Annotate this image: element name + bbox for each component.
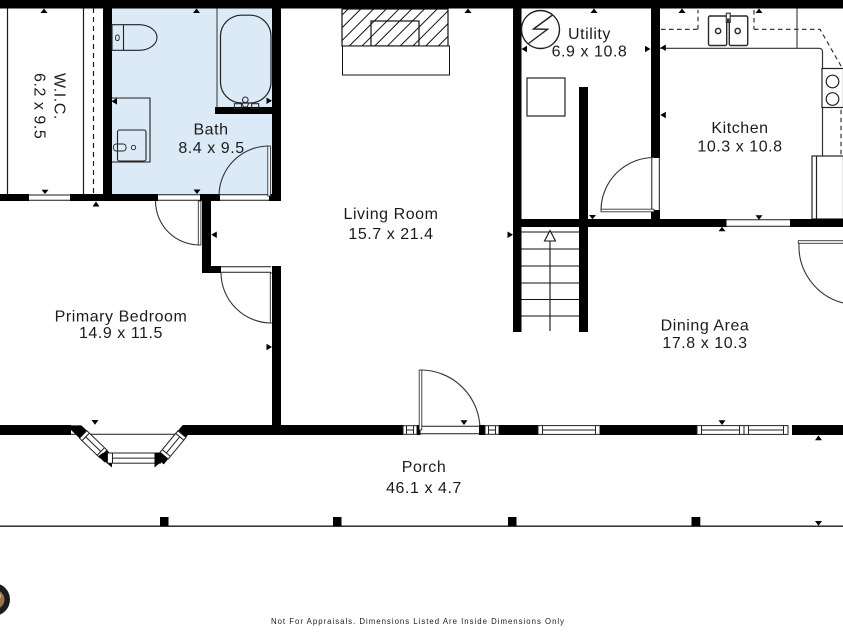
svg-text:14.9 x 11.5: 14.9 x 11.5	[79, 325, 163, 342]
svg-text:17.8 x 10.3: 17.8 x 10.3	[662, 335, 747, 352]
svg-text:Kitchen: Kitchen	[711, 120, 768, 137]
svg-text:Not For Appraisals. Dimensions: Not For Appraisals. Dimensions Listed Ar…	[271, 617, 565, 626]
svg-text:10.3 x 10.8: 10.3 x 10.8	[697, 138, 782, 155]
svg-text:15.7 x 21.4: 15.7 x 21.4	[348, 226, 433, 243]
svg-text:W.I.C.: W.I.C.	[51, 73, 68, 120]
svg-text:6.9 x 10.8: 6.9 x 10.8	[552, 44, 628, 61]
svg-text:46.1 x 4.7: 46.1 x 4.7	[386, 480, 462, 497]
svg-text:Living Room: Living Room	[344, 206, 439, 223]
svg-text:Utility: Utility	[568, 26, 611, 43]
svg-text:Porch: Porch	[402, 459, 447, 476]
svg-text:Primary Bedroom: Primary Bedroom	[55, 308, 188, 325]
svg-text:6.2 x 9.5: 6.2 x 9.5	[31, 73, 48, 139]
svg-text:8.4 x 9.5: 8.4 x 9.5	[178, 140, 244, 157]
svg-text:Bath: Bath	[193, 121, 228, 138]
svg-text:Dining Area: Dining Area	[661, 318, 750, 335]
